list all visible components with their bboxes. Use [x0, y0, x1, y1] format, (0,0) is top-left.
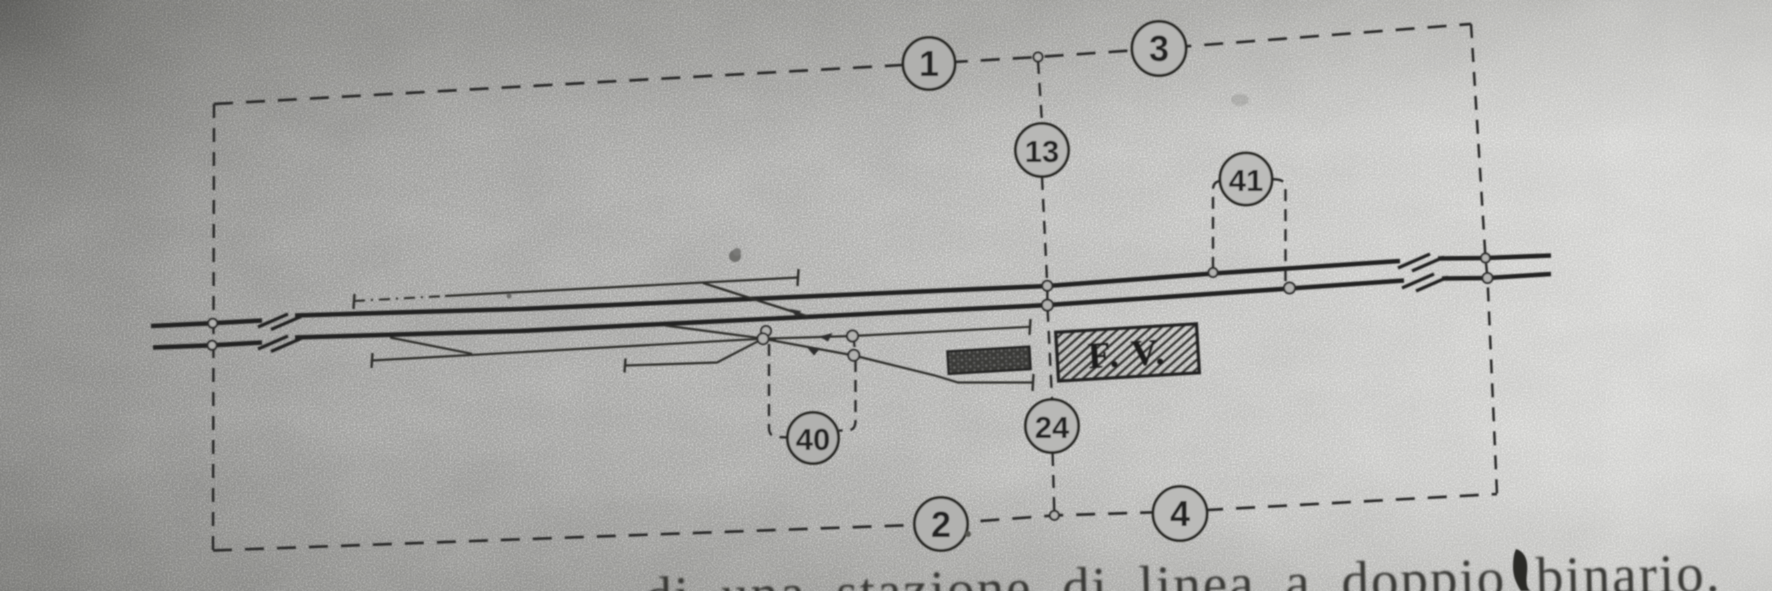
svg-text:40: 40 — [796, 422, 830, 457]
svg-text:13: 13 — [1025, 134, 1059, 169]
svg-text:4: 4 — [1170, 493, 1190, 534]
svg-text:2: 2 — [931, 504, 951, 545]
svg-text:3: 3 — [1149, 28, 1169, 69]
svg-text:24: 24 — [1035, 410, 1070, 445]
svg-text:F. V.: F. V. — [1087, 332, 1168, 378]
svg-text:41: 41 — [1229, 163, 1263, 198]
svg-text:1: 1 — [919, 43, 939, 84]
